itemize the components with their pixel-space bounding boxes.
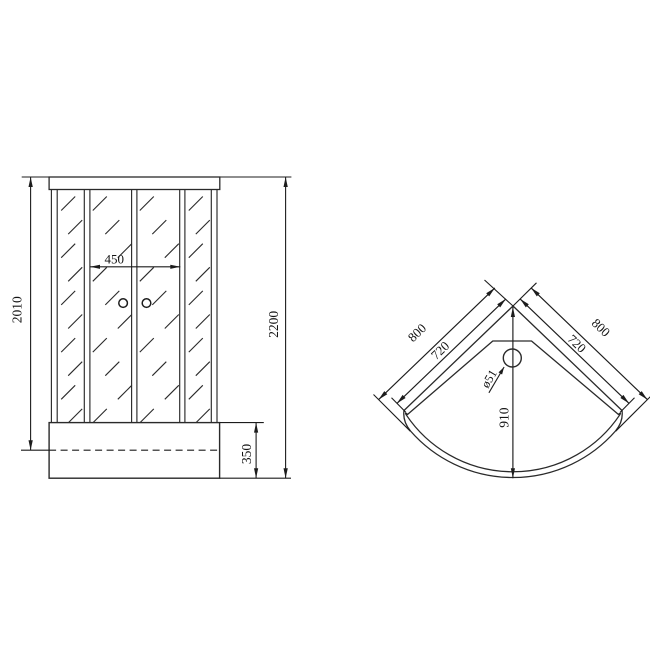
- svg-text:2010: 2010: [10, 296, 25, 323]
- svg-text:450: 450: [104, 252, 124, 267]
- svg-text:800: 800: [589, 315, 613, 339]
- svg-text:910: 910: [496, 407, 511, 428]
- svg-text:800: 800: [405, 320, 429, 344]
- svg-text:720: 720: [565, 331, 589, 355]
- svg-text:2200: 2200: [266, 311, 281, 338]
- svg-text:350: 350: [239, 444, 254, 465]
- svg-text:720: 720: [428, 338, 452, 362]
